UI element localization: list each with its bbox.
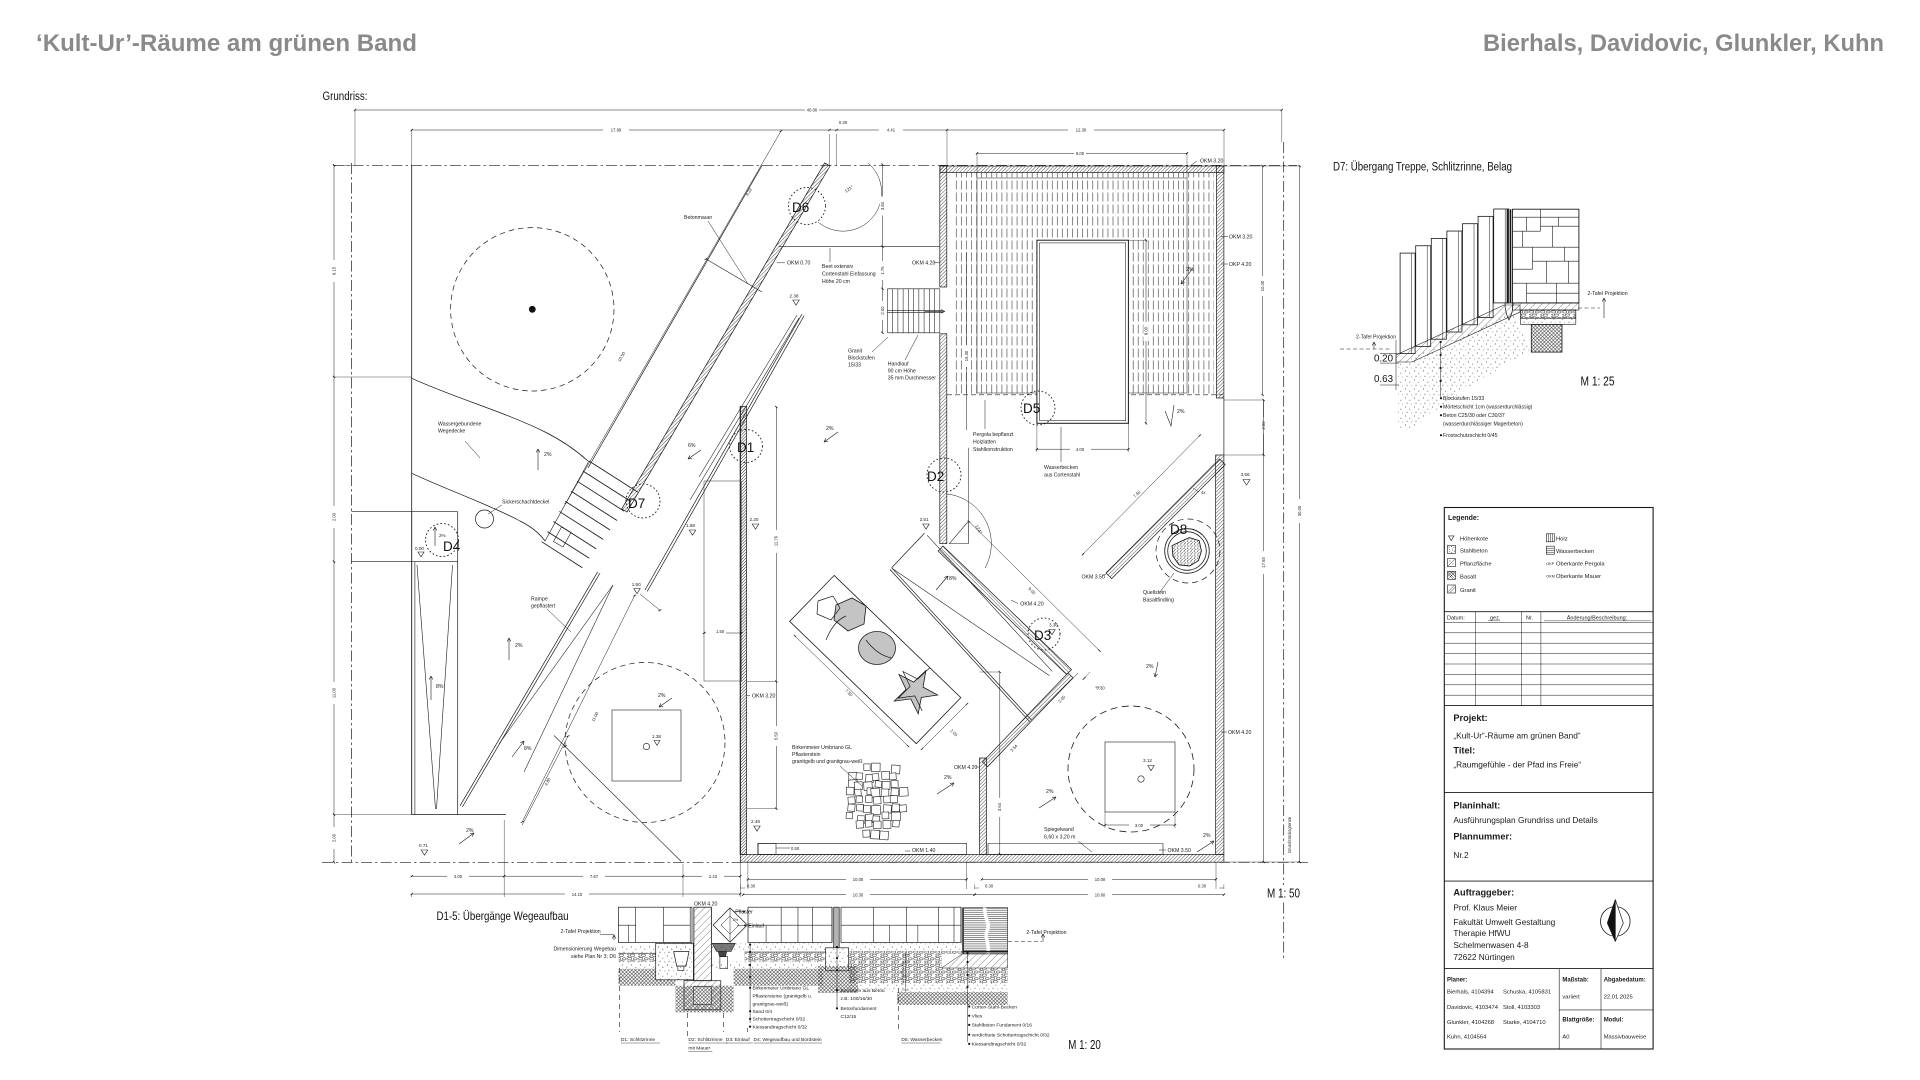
svg-text:Birkenmeier Umbriano GL: Birkenmeier Umbriano GL bbox=[792, 745, 852, 751]
svg-text:Vlies: Vlies bbox=[972, 1014, 983, 1020]
svg-text:Legende:: Legende: bbox=[1448, 515, 1479, 522]
svg-text:OKM 1.40: OKM 1.40 bbox=[912, 848, 935, 854]
svg-text:2.38: 2.38 bbox=[790, 294, 799, 299]
svg-text:Blattgröße:: Blattgröße: bbox=[1562, 1018, 1594, 1024]
svg-text:Bierhals, 4104394: Bierhals, 4104394 bbox=[1447, 990, 1495, 996]
svg-text:D7: Übergang Treppe, Schlitzri: D7: Übergang Treppe, Schlitzrinne, Belag bbox=[1333, 162, 1512, 174]
svg-text:1.50: 1.50 bbox=[632, 582, 641, 587]
svg-text:M 1: 50: M 1: 50 bbox=[1267, 886, 1300, 901]
svg-text:14.10: 14.10 bbox=[572, 892, 583, 897]
svg-text:2-Tafel Projektion: 2-Tafel Projektion bbox=[1356, 335, 1396, 341]
svg-text:OKP 4.20: OKP 4.20 bbox=[1229, 262, 1252, 268]
svg-text:siehe Plan Nr 3; D6: siehe Plan Nr 3; D6 bbox=[571, 954, 616, 960]
svg-text:Oberkante Pergola: Oberkante Pergola bbox=[1556, 562, 1605, 568]
svg-text:Corten-Stahl-Becken: Corten-Stahl-Becken bbox=[972, 1004, 1018, 1010]
svg-text:0.20: 0.20 bbox=[1374, 353, 1393, 365]
svg-text:16.30: 16.30 bbox=[964, 350, 969, 361]
svg-text:mit Mauer: mit Mauer bbox=[688, 1046, 710, 1052]
svg-text:Pflastersteine (granitgelb u.: Pflastersteine (granitgelb u. bbox=[753, 994, 813, 1000]
svg-text:2.43: 2.43 bbox=[709, 874, 718, 879]
svg-text:Wegedecke: Wegedecke bbox=[438, 429, 465, 435]
svg-text:6%: 6% bbox=[688, 443, 696, 449]
svg-text:Schuska, 4105831: Schuska, 4105831 bbox=[1503, 990, 1551, 996]
svg-text:Bierhals, Davidovic, Glunkler,: Bierhals, Davidovic, Glunkler, Kuhn bbox=[1483, 30, 1884, 57]
svg-text:2-Tafel Projektion: 2-Tafel Projektion bbox=[1588, 291, 1628, 297]
svg-text:2%: 2% bbox=[1046, 789, 1054, 795]
svg-text:0.30: 0.30 bbox=[1198, 884, 1207, 889]
svg-text:M 1: 20: M 1: 20 bbox=[1068, 1037, 1101, 1052]
svg-text:1.76: 1.76 bbox=[880, 266, 885, 275]
svg-text:Datum:: Datum: bbox=[1447, 616, 1465, 622]
svg-text:Stahlkonstruktion: Stahlkonstruktion bbox=[973, 447, 1013, 453]
svg-text:Spiegelwand: Spiegelwand bbox=[1044, 827, 1074, 833]
svg-text:D2: D2 bbox=[927, 469, 944, 484]
svg-text:Nr.2: Nr.2 bbox=[1453, 850, 1469, 860]
svg-text:2%: 2% bbox=[826, 426, 834, 432]
svg-text:Therapie HfWU: Therapie HfWU bbox=[1453, 928, 1510, 938]
svg-text:2%: 2% bbox=[1203, 833, 1211, 839]
svg-text:OKM 4.20: OKM 4.20 bbox=[954, 765, 977, 771]
svg-text:OKP: OKP bbox=[1546, 562, 1554, 566]
svg-text:D1-5: Übergänge Wegeaufbau: D1-5: Übergänge Wegeaufbau bbox=[437, 909, 569, 923]
svg-text:2%: 2% bbox=[1146, 664, 1154, 670]
svg-text:9.00: 9.00 bbox=[1076, 151, 1085, 156]
svg-text:C12/15: C12/15 bbox=[841, 1014, 857, 1020]
svg-text:Prof. Klaus Meier: Prof. Klaus Meier bbox=[1453, 903, 1517, 913]
svg-text:D3: Einlauf: D3: Einlauf bbox=[726, 1037, 751, 1043]
svg-text:Massivbauweise: Massivbauweise bbox=[1604, 1035, 1647, 1041]
svg-text:3.56: 3.56 bbox=[1241, 472, 1250, 477]
svg-text:3.64: 3.64 bbox=[997, 802, 1002, 811]
svg-text:8%: 8% bbox=[949, 576, 957, 582]
svg-text:‘Kult-Ur’-Räume am grünen Band: ‘Kult-Ur’-Räume am grünen Band bbox=[36, 30, 417, 57]
svg-text:D8: D8 bbox=[1170, 522, 1187, 537]
svg-text:2%: 2% bbox=[544, 452, 552, 458]
svg-text:1.38: 1.38 bbox=[652, 734, 661, 739]
svg-text:Ausführungsplan Grundriss und: Ausführungsplan Grundriss und Details bbox=[1453, 815, 1597, 825]
svg-text:OKM 4.20: OKM 4.20 bbox=[912, 261, 935, 267]
svg-text:Beet extensiv: Beet extensiv bbox=[822, 264, 854, 270]
svg-text:Pergola bepflanzt: Pergola bepflanzt bbox=[973, 432, 1014, 438]
svg-text:OKM 4.20: OKM 4.20 bbox=[1228, 730, 1251, 736]
svg-text:11.00: 11.00 bbox=[331, 687, 336, 698]
svg-text:Planer:: Planer: bbox=[1447, 978, 1467, 984]
svg-text:Modul:: Modul: bbox=[1604, 1018, 1624, 1024]
svg-text:Glunkler, 4104268: Glunkler, 4104268 bbox=[1447, 1020, 1494, 1026]
svg-text:„Raumgefühle - der Pfad ins Fr: „Raumgefühle - der Pfad ins Freie“ bbox=[1453, 760, 1581, 770]
svg-text:4.00: 4.00 bbox=[1076, 447, 1085, 452]
svg-text:40.00: 40.00 bbox=[807, 108, 818, 113]
svg-text:2%: 2% bbox=[466, 828, 474, 834]
svg-text:1.58: 1.58 bbox=[686, 523, 695, 528]
svg-text:gepflastert: gepflastert bbox=[531, 604, 556, 610]
svg-text:D6: D6 bbox=[792, 200, 809, 215]
svg-text:Mörtelschicht 1cm (wasserdurch: Mörtelschicht 1cm (wasserdurchlässig) bbox=[1443, 405, 1533, 411]
svg-text:Schelmenwasen 4-8: Schelmenwasen 4-8 bbox=[1453, 940, 1529, 950]
svg-text:Basalt: Basalt bbox=[1460, 574, 1477, 580]
svg-text:D5: Wasserbecken: D5: Wasserbecken bbox=[901, 1037, 942, 1043]
svg-text:Sickerschachtdeckel: Sickerschachtdeckel bbox=[502, 500, 549, 506]
svg-text:35 mm Durchmesser: 35 mm Durchmesser bbox=[888, 376, 936, 382]
svg-text:0.30: 0.30 bbox=[839, 120, 848, 125]
svg-text:OKM 3.20: OKM 3.20 bbox=[752, 694, 775, 700]
svg-text:0.00: 0.00 bbox=[415, 546, 424, 551]
svg-text:2%: 2% bbox=[1186, 267, 1194, 273]
svg-text:OKM 0.70: OKM 0.70 bbox=[787, 261, 810, 267]
svg-text:„Kult-Ur“-Räume am grünen Band: „Kult-Ur“-Räume am grünen Band“ bbox=[1453, 731, 1581, 741]
svg-text:11.76: 11.76 bbox=[774, 535, 779, 546]
svg-text:10.00: 10.00 bbox=[853, 877, 864, 882]
svg-text:2%: 2% bbox=[733, 918, 739, 922]
svg-text:Schottertragschicht 0/32: Schottertragschicht 0/32 bbox=[753, 1017, 806, 1023]
svg-text:2.20: 2.20 bbox=[750, 517, 759, 522]
svg-text:5.50: 5.50 bbox=[774, 731, 779, 740]
svg-text:Bordstein aus Beton: Bordstein aus Beton bbox=[841, 988, 885, 994]
svg-text:Wasserbecken: Wasserbecken bbox=[1044, 465, 1078, 471]
svg-text:2.51: 2.51 bbox=[920, 517, 929, 522]
svg-text:17.99: 17.99 bbox=[611, 128, 622, 133]
svg-text:Titel:: Titel: bbox=[1453, 746, 1475, 756]
svg-text:D5: D5 bbox=[1023, 401, 1040, 416]
svg-text:Rampe: Rampe bbox=[531, 597, 548, 603]
svg-text:Fakultät Umwelt Gestaltung: Fakultät Umwelt Gestaltung bbox=[1453, 917, 1555, 927]
svg-text:2-Tafel Projektion: 2-Tafel Projektion bbox=[1026, 930, 1066, 936]
svg-text:aus Cortenstahl: aus Cortenstahl bbox=[1044, 473, 1080, 479]
svg-text:OKM 3.20: OKM 3.20 bbox=[1200, 159, 1223, 165]
svg-text:2%: 2% bbox=[944, 775, 952, 781]
svg-text:22.01.2025: 22.01.2025 bbox=[1604, 995, 1633, 1001]
svg-text:Planinhalt:: Planinhalt: bbox=[1453, 801, 1500, 811]
svg-text:Änderung/Beschreibung:: Änderung/Beschreibung: bbox=[1567, 615, 1628, 622]
svg-text:17.93: 17.93 bbox=[1261, 557, 1266, 568]
svg-text:OKM 4.20: OKM 4.20 bbox=[1020, 602, 1043, 608]
svg-text:8%: 8% bbox=[436, 684, 444, 690]
svg-text:Stoll, 4103303: Stoll, 4103303 bbox=[1503, 1005, 1540, 1011]
svg-text:Stahlbeton Fundament 0/16: Stahlbeton Fundament 0/16 bbox=[972, 1023, 1033, 1029]
svg-text:6,60 x 3,20 m: 6,60 x 3,20 m bbox=[1044, 835, 1075, 841]
svg-text:Pflanzfläche: Pflanzfläche bbox=[1460, 562, 1492, 568]
svg-text:Höhe 20 cm: Höhe 20 cm bbox=[822, 279, 850, 285]
svg-text:z.B. 100/16/30: z.B. 100/16/30 bbox=[841, 996, 873, 1002]
svg-text:Betonmauer: Betonmauer bbox=[684, 215, 713, 221]
svg-text:0.30: 0.30 bbox=[1097, 686, 1106, 691]
svg-text:10.00: 10.00 bbox=[1260, 280, 1265, 291]
svg-text:10.30: 10.30 bbox=[853, 893, 864, 898]
svg-text:0.30: 0.30 bbox=[985, 884, 994, 889]
svg-text:2%: 2% bbox=[658, 693, 666, 699]
svg-text:2.00: 2.00 bbox=[331, 833, 336, 842]
svg-text:OKM 4.20: OKM 4.20 bbox=[694, 902, 717, 908]
svg-text:Abgabedatum:: Abgabedatum: bbox=[1604, 978, 1646, 984]
svg-text:3.12: 3.12 bbox=[1143, 758, 1152, 763]
svg-text:Beton C25/30 oder C30/37: Beton C25/30 oder C30/37 bbox=[1443, 413, 1505, 419]
svg-text:D3: D3 bbox=[1034, 628, 1051, 643]
svg-text:Kiessandtragschicht 0/32: Kiessandtragschicht 0/32 bbox=[753, 1024, 808, 1030]
svg-text:1.50: 1.50 bbox=[716, 629, 725, 634]
svg-text:Plannummer:: Plannummer: bbox=[1453, 832, 1512, 842]
svg-text:Betonfundament: Betonfundament bbox=[841, 1006, 878, 1012]
svg-text:9.15: 9.15 bbox=[331, 266, 336, 275]
svg-text:OKM 3.20: OKM 3.20 bbox=[1229, 235, 1252, 241]
svg-text:Projekt:: Projekt: bbox=[1453, 713, 1487, 723]
svg-text:granitgelb und granitgrau-weiß: granitgelb und granitgrau-weiß bbox=[792, 759, 862, 765]
svg-text:OKM: OKM bbox=[1546, 575, 1555, 579]
svg-text:2%: 2% bbox=[1177, 409, 1185, 415]
svg-text:0.30: 0.30 bbox=[747, 884, 756, 889]
svg-text:Granit: Granit bbox=[848, 349, 863, 355]
svg-text:Pflasterstein: Pflasterstein bbox=[792, 752, 821, 758]
svg-text:OKM 3.50: OKM 3.50 bbox=[1082, 575, 1105, 581]
svg-text:3.36: 3.36 bbox=[1049, 623, 1058, 628]
svg-text:2%: 2% bbox=[515, 643, 523, 649]
svg-text:72622 Nürtingen: 72622 Nürtingen bbox=[1453, 952, 1515, 962]
svg-text:Starke, 4104710: Starke, 4104710 bbox=[1503, 1020, 1546, 1026]
svg-text:10.60: 10.60 bbox=[1095, 893, 1106, 898]
svg-text:Kuhn, 4104564: Kuhn, 4104564 bbox=[1447, 1035, 1487, 1041]
svg-text:2%: 2% bbox=[439, 533, 446, 538]
svg-text:Wasserbecken: Wasserbecken bbox=[1556, 549, 1594, 555]
svg-text:Quellstein: Quellstein bbox=[1143, 590, 1166, 596]
svg-text:Sand 0/4: Sand 0/4 bbox=[753, 1009, 773, 1015]
svg-text:Dimensionierung Wegebau: Dimensionierung Wegebau bbox=[554, 947, 617, 953]
svg-text:Blockstufen 15/33: Blockstufen 15/33 bbox=[1443, 396, 1484, 402]
svg-text:Oberkante Mauer: Oberkante Mauer bbox=[1556, 574, 1601, 580]
svg-text:Handlauf: Handlauf bbox=[888, 362, 909, 368]
svg-text:variiert: variiert bbox=[1562, 995, 1580, 1001]
svg-text:12.30: 12.30 bbox=[1076, 128, 1087, 133]
svg-text:verdichtete Schottertragschich: verdichtete Schottertragschicht 0/32 bbox=[972, 1033, 1050, 1039]
svg-text:4.41: 4.41 bbox=[887, 128, 896, 133]
svg-text:0.16-0.26-0.33: 0.16-0.26-0.33 bbox=[901, 963, 905, 985]
svg-text:3.00: 3.00 bbox=[1135, 823, 1144, 828]
svg-text:2.00: 2.00 bbox=[880, 306, 885, 315]
svg-text:Birkenmeier Umbriano GL: Birkenmeier Umbriano GL bbox=[753, 986, 810, 992]
svg-text:7.67: 7.67 bbox=[590, 874, 599, 879]
svg-text:0.50: 0.50 bbox=[791, 846, 800, 851]
svg-text:Blockstufen: Blockstufen bbox=[848, 356, 875, 362]
svg-text:Basaltfindling: Basaltfindling bbox=[1143, 598, 1174, 604]
svg-text:Holz: Holz bbox=[1556, 536, 1568, 542]
svg-text:8.00: 8.00 bbox=[1143, 326, 1148, 335]
svg-text:D1: D1 bbox=[737, 440, 754, 455]
svg-text:D2: Schlitzrinne: D2: Schlitzrinne bbox=[688, 1037, 723, 1043]
svg-text:0.71: 0.71 bbox=[419, 843, 428, 848]
svg-text:4.00: 4.00 bbox=[454, 874, 463, 879]
svg-text:granitgrau-weiß): granitgrau-weiß) bbox=[753, 1001, 789, 1007]
svg-text:2.48: 2.48 bbox=[751, 819, 760, 824]
svg-text:Nr.: Nr. bbox=[1526, 616, 1534, 622]
svg-text:D1: Schlitzrinne: D1: Schlitzrinne bbox=[621, 1037, 656, 1043]
svg-text:Wassergebundene: Wassergebundene bbox=[438, 422, 481, 428]
svg-text:Holzlatten: Holzlatten bbox=[973, 440, 996, 446]
svg-text:Stahlbeton: Stahlbeton bbox=[1460, 548, 1488, 554]
svg-text:Höhenkote: Höhenkote bbox=[1460, 536, 1488, 542]
svg-text:(wasserdurchlässiger Magerbeto: (wasserdurchlässiger Magerbeton) bbox=[1443, 422, 1523, 428]
svg-text:D4: Wegeaufbau und Bordstein: D4: Wegeaufbau und Bordstein bbox=[754, 1037, 822, 1043]
svg-text:3.84: 3.84 bbox=[880, 201, 885, 210]
svg-text:Cortenstahl Einfassung: Cortenstahl Einfassung bbox=[822, 272, 876, 278]
svg-text:10.00: 10.00 bbox=[1095, 877, 1106, 882]
svg-text:2.00: 2.00 bbox=[331, 512, 336, 521]
svg-text:Auftraggeber:: Auftraggeber: bbox=[1453, 888, 1514, 898]
svg-text:OKM 3.50: OKM 3.50 bbox=[1168, 848, 1191, 854]
svg-text:Frostschutzschicht 0/45: Frostschutzschicht 0/45 bbox=[1443, 433, 1498, 439]
svg-text:Maßstab:: Maßstab: bbox=[1562, 978, 1588, 984]
svg-text:M 1: 25: M 1: 25 bbox=[1581, 375, 1615, 389]
svg-text:Einlauf: Einlauf bbox=[748, 924, 764, 930]
svg-text:0.63: 0.63 bbox=[1374, 373, 1393, 385]
svg-text:15/33: 15/33 bbox=[848, 363, 861, 369]
svg-text:Kiessandtragschicht 0/32: Kiessandtragschicht 0/32 bbox=[972, 1042, 1027, 1048]
svg-text:Grundriss:: Grundriss: bbox=[323, 91, 368, 103]
svg-text:Grundstücksgrenze: Grundstücksgrenze bbox=[1287, 816, 1292, 853]
svg-text:2-Tafel Projektion: 2-Tafel Projektion bbox=[561, 929, 601, 935]
svg-text:90 cm Höhe: 90 cm Höhe bbox=[888, 369, 916, 375]
svg-text:Davidovic, 4103474: Davidovic, 4103474 bbox=[1447, 1005, 1499, 1011]
svg-text:8%: 8% bbox=[524, 746, 532, 752]
svg-text:D7: D7 bbox=[628, 496, 645, 511]
svg-text:D4: D4 bbox=[443, 539, 461, 554]
svg-text:Granit: Granit bbox=[1460, 588, 1476, 594]
svg-text:A0: A0 bbox=[1562, 1035, 1569, 1041]
svg-text:30.00: 30.00 bbox=[1297, 505, 1302, 516]
